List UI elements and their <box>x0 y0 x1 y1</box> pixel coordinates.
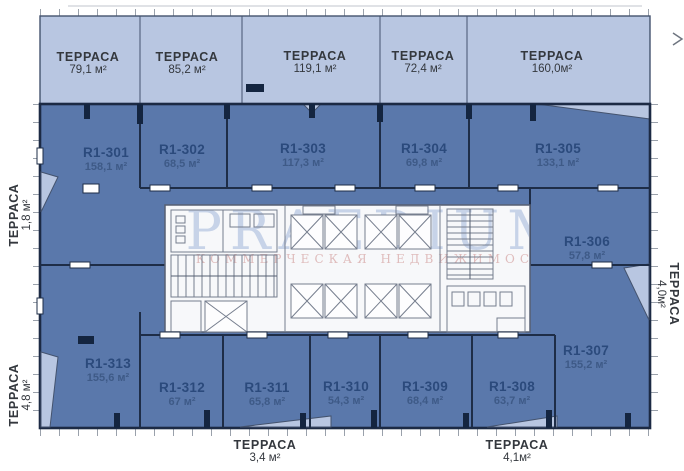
unit-label-R1-304: R1-30469,8 м² <box>401 141 447 169</box>
terrace-label-2: ТЕРРАСА85,2 м² <box>156 50 219 78</box>
unit-label-R1-308: R1-30863,7 м² <box>489 379 535 407</box>
edge-arrow-icon <box>673 33 682 45</box>
core: PRAEDIUM КОММЕРЧЕСКАЯ НЕДВИЖИМОСТЬ <box>165 199 570 332</box>
unit-label-R1-306: R1-30657,8 м² <box>564 234 610 262</box>
unit-label-R1-310: R1-31054,3 м² <box>323 379 369 407</box>
unit-label-R1-312: R1-31267 м² <box>159 380 205 408</box>
unit-label-R1-305: R1-305133,1 м² <box>535 141 581 169</box>
unit-label-R1-309: R1-30968,4 м² <box>402 379 448 407</box>
terrace-label-1: ТЕРРАСА79,1 м² <box>57 50 120 78</box>
unit-label-R1-303: R1-303117,3 м² <box>280 141 326 169</box>
terrace-label-4: ТЕРРАСА72,4 м² <box>392 49 455 77</box>
unit-label-R1-311: R1-31165,8 м² <box>244 380 289 408</box>
terrace-label-3: ТЕРРАСА119,1 м² <box>284 49 347 77</box>
terrace-label-bottom-right: ТЕРРАСА4,1м² <box>486 438 549 466</box>
terrace-label-5: ТЕРРАСА160,0м² <box>521 49 584 77</box>
watermark-subtitle: КОММЕРЧЕСКАЯ НЕДВИЖИМОСТЬ <box>196 252 560 266</box>
unit-label-R1-301: R1-301158,1 м² <box>83 145 129 173</box>
unit-label-R1-302: R1-30268,5 м² <box>159 142 205 170</box>
unit-label-R1-307: R1-307155,2 м² <box>563 343 609 371</box>
floor-plan: PRAEDIUM КОММЕРЧЕСКАЯ НЕДВИЖИМОСТЬ <box>0 0 684 471</box>
terrace-label-right: ТЕРРАСА4,0м² <box>653 263 681 326</box>
unit-label-R1-313: R1-313155,6 м² <box>85 356 131 384</box>
terrace-label-left-lower: ТЕРРАСА4,8 м² <box>7 364 35 427</box>
terrace-label-bottom-left: ТЕРРАСА3,4 м² <box>234 438 297 466</box>
terrace-label-left-upper: ТЕРРАСА1,8 м² <box>7 184 35 247</box>
